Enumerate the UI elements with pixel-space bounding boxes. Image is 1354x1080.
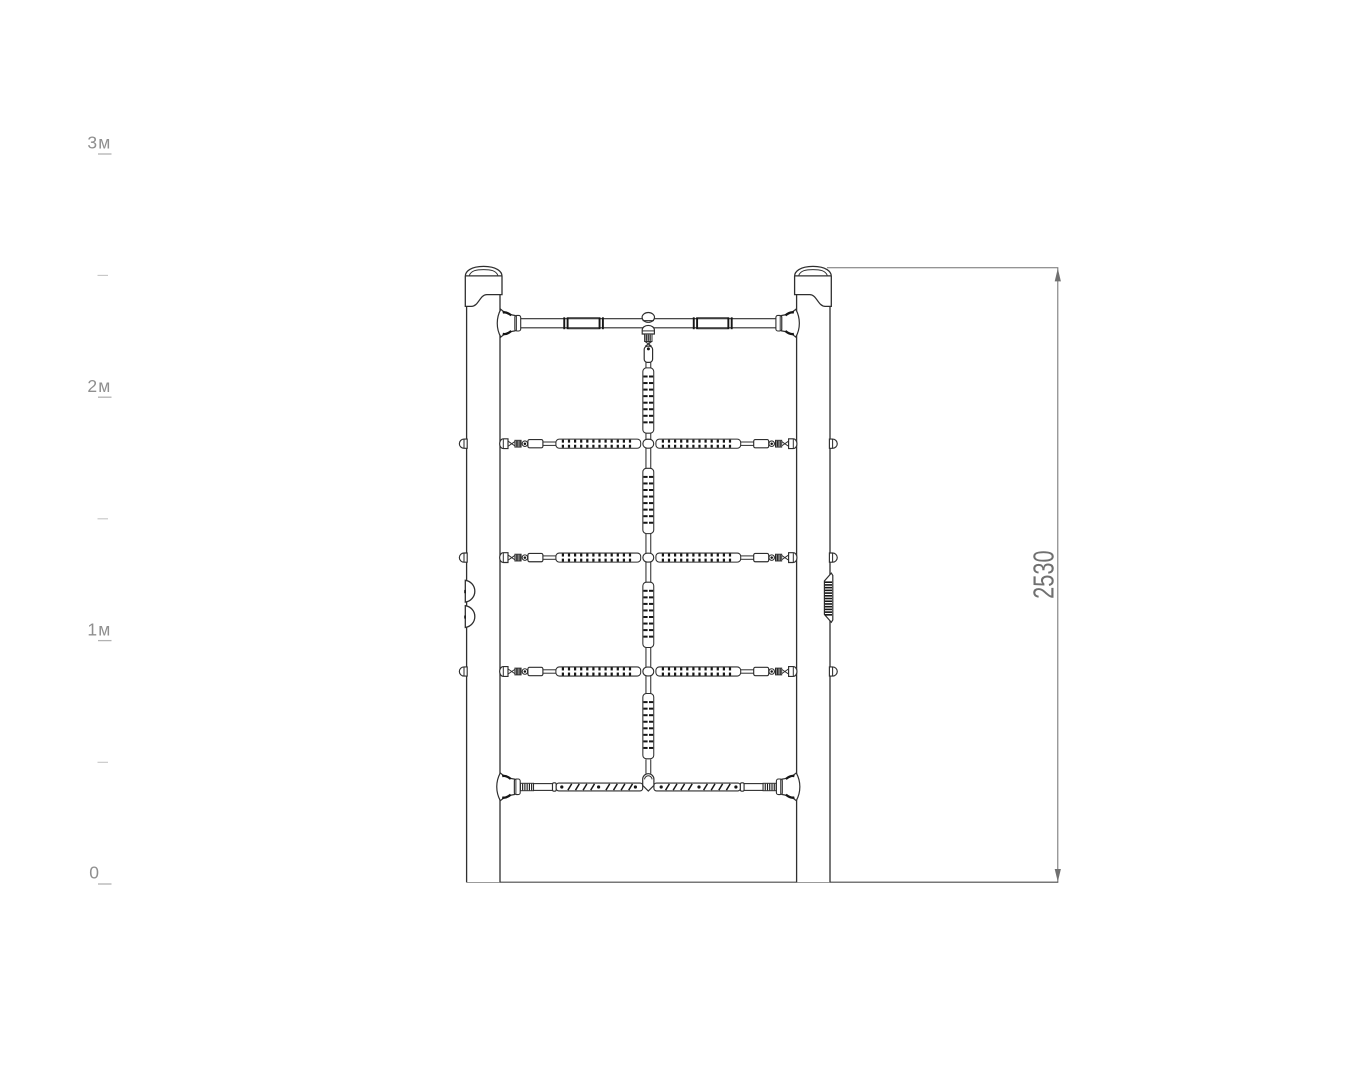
svg-text:3м: 3м xyxy=(87,133,111,153)
svg-text:1м: 1м xyxy=(87,619,111,639)
svg-text:0: 0 xyxy=(89,863,99,883)
svg-text:2м: 2м xyxy=(87,376,111,396)
svg-text:2530: 2530 xyxy=(1028,550,1060,599)
